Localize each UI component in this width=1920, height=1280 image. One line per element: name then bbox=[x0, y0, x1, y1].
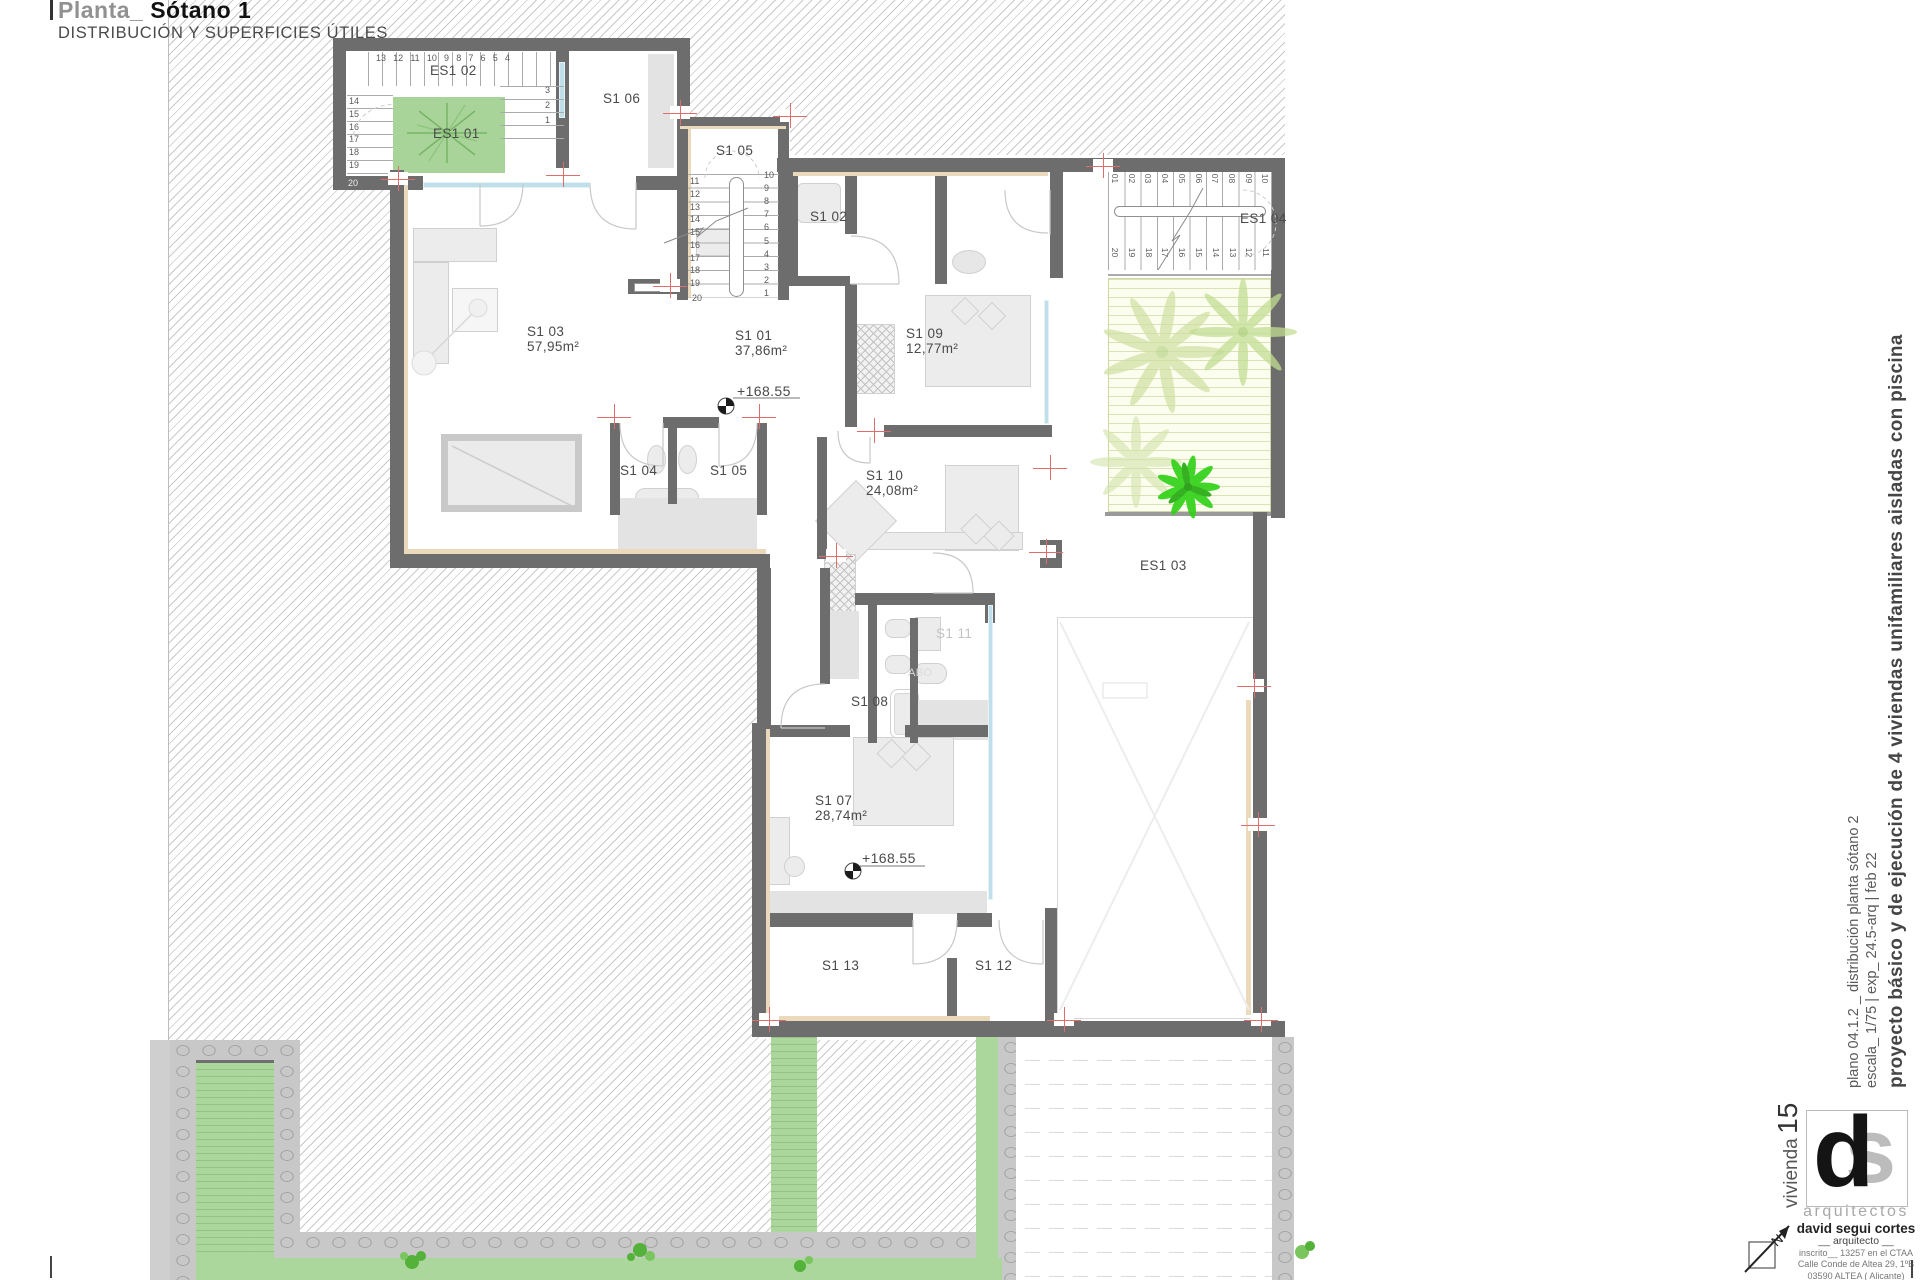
address-line-1: Calle Conde de Altea 29, 1ºB bbox=[1780, 1259, 1920, 1271]
junction-marker bbox=[1251, 1013, 1271, 1026]
title-name: Sótano 1 bbox=[150, 0, 251, 23]
logo-box: s d bbox=[1806, 1110, 1908, 1207]
junction-marker bbox=[553, 168, 573, 181]
room-name: S1 07 bbox=[815, 793, 867, 808]
room-label-s1-03: S1 0357,95m² bbox=[527, 324, 579, 354]
architect-role: __ arquitecto __ bbox=[1780, 1236, 1920, 1248]
junction-marker bbox=[749, 410, 769, 423]
room-label-s1-04: S1 04 bbox=[620, 463, 657, 478]
tread-number: 20 bbox=[348, 178, 358, 188]
junction-marker bbox=[1036, 545, 1056, 558]
scale-line-vertical: escala_ 1/75 | exp_ 24.5-arq | feb 22 bbox=[1864, 852, 1880, 1088]
room-label-s1-10: S1 1024,08m² bbox=[866, 468, 918, 498]
architect-block: david segui cortes __ arquitecto __ insc… bbox=[1780, 1221, 1920, 1280]
door-swings bbox=[480, 183, 1050, 964]
title-prefix: Planta_ bbox=[58, 0, 143, 23]
room-area: 12,77m² bbox=[906, 341, 958, 356]
junction-marker bbox=[1248, 818, 1268, 831]
junction-marker bbox=[1093, 159, 1113, 172]
junction-marker bbox=[388, 172, 408, 185]
junction-marker bbox=[1040, 461, 1060, 474]
room-name: S1 09 bbox=[906, 326, 958, 341]
address-line-2: 03590 ALTEA ( Alicante) bbox=[1780, 1271, 1920, 1280]
room-label-s1-12: S1 12 bbox=[975, 958, 1012, 973]
sheet-subtitle: DISTRIBUCIÓN Y SUPERFICIES ÚTILES bbox=[58, 24, 388, 43]
room-label-s1-07: S1 0728,74m² bbox=[815, 793, 867, 823]
junction-marker bbox=[759, 1013, 779, 1026]
pool-cross bbox=[1060, 622, 1249, 1010]
level-label: +168.55 bbox=[737, 384, 791, 399]
floor-plan-sheet: 13121110987654 141516171819 20 321 11121… bbox=[0, 0, 1920, 1280]
title-tick bbox=[50, 0, 53, 20]
stair-break-lines bbox=[664, 188, 1203, 270]
room-label-s1-13: S1 13 bbox=[822, 958, 859, 973]
room-area: 57,95m² bbox=[527, 339, 579, 354]
architect-registration: inscrito__ 13257 en el CTAA bbox=[1780, 1248, 1920, 1260]
architect-name: david segui cortes bbox=[1780, 1221, 1920, 1236]
house-label: vivienda bbox=[1781, 1138, 1802, 1208]
house-number: 15 bbox=[1772, 1103, 1803, 1134]
stair-guide-arcs bbox=[352, 104, 1276, 256]
room-label-s1-06: S1 06 bbox=[603, 91, 640, 106]
level-label: +168.55 bbox=[862, 851, 916, 866]
room-label-s1-08: S1 08 bbox=[851, 694, 888, 709]
junction-marker bbox=[670, 106, 690, 119]
room-name: S1 10 bbox=[866, 468, 918, 483]
junction-marker bbox=[780, 109, 800, 122]
room-label-es1-02: ES1 02 bbox=[430, 63, 477, 78]
logo-letter-d: d bbox=[1813, 1110, 1874, 1207]
room-label-s1-01: S1 0137,86m² bbox=[735, 328, 787, 358]
plan-number-vertical: plano 04.1.2 _ distribución planta sótan… bbox=[1846, 816, 1862, 1088]
garden-bushes bbox=[400, 1241, 1315, 1272]
studio-name: arquitectos bbox=[1796, 1203, 1916, 1221]
junction-marker bbox=[1054, 1013, 1074, 1026]
palm-tree bbox=[1189, 278, 1297, 386]
junction-marker bbox=[864, 424, 884, 437]
room-label-s1-09: S1 0912,77m² bbox=[906, 326, 958, 356]
palm-tree bbox=[1102, 290, 1224, 414]
house-label-vertical: vivienda 15 bbox=[1772, 1103, 1804, 1208]
room-label-s1-05-bath: S1 05 bbox=[710, 463, 747, 478]
edge-tick bbox=[1911, 1260, 1913, 1278]
junction-marker bbox=[826, 549, 846, 562]
room-area: 24,08m² bbox=[866, 483, 918, 498]
room-name: S1 03 bbox=[527, 324, 579, 339]
room-name: S1 01 bbox=[735, 328, 787, 343]
room-label-es1-03: ES1 03 bbox=[1140, 558, 1187, 573]
junction-marker bbox=[1244, 679, 1264, 692]
junction-marker bbox=[660, 279, 680, 292]
room-label-es1-04: ES1 04 bbox=[1240, 211, 1287, 226]
room-label-s1-02: S1 02 bbox=[810, 209, 847, 224]
room-area: 28,74m² bbox=[815, 808, 867, 823]
room-label-es1-01: ES1 01 bbox=[433, 126, 480, 141]
room-label-s1-11: S1 11 bbox=[936, 626, 972, 641]
sheet-title: Planta_ Sótano 1 bbox=[58, 0, 251, 24]
edge-tick bbox=[50, 1256, 52, 1278]
faint-text: ABO bbox=[908, 666, 932, 681]
project-title-vertical: proyecto básico y de ejecución de 4 vivi… bbox=[1886, 334, 1908, 1088]
junction-marker bbox=[604, 410, 624, 423]
room-label-s1-05-stair: S1 05 bbox=[716, 143, 753, 158]
room-area: 37,86m² bbox=[735, 343, 787, 358]
